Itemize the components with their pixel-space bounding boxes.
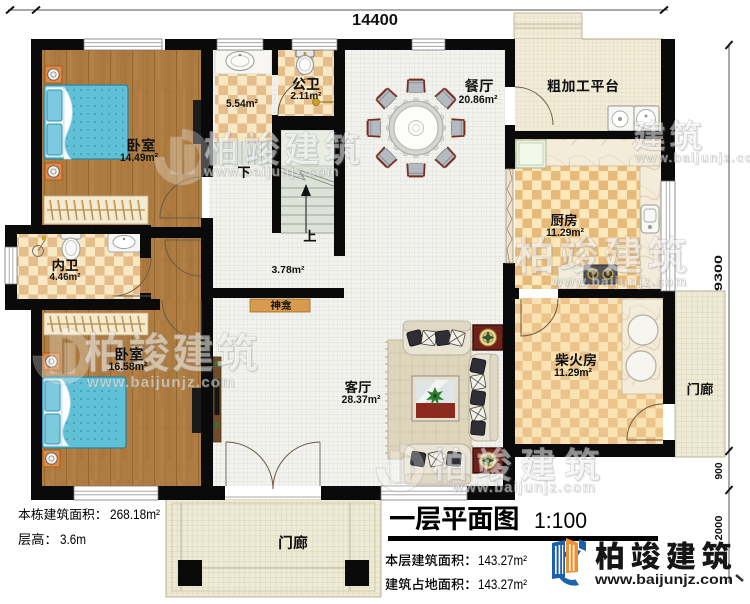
- svg-text:16.58m²: 16.58m²: [109, 361, 148, 373]
- svg-text:www.baijunjz.com: www.baijunjz.com: [203, 164, 340, 179]
- svg-text:3.6m: 3.6m: [60, 532, 86, 547]
- svg-text:11.29m²: 11.29m²: [554, 367, 592, 379]
- svg-text:143.27m²: 143.27m²: [478, 552, 527, 568]
- svg-text:28.37m²: 28.37m²: [342, 394, 381, 406]
- svg-text:900: 900: [714, 462, 725, 479]
- svg-text:1:100: 1:100: [534, 508, 587, 533]
- svg-text:14.49m²: 14.49m²: [120, 152, 158, 164]
- svg-text:www.baijunjz.com: www.baijunjz.com: [551, 274, 688, 289]
- svg-text:2000: 2000: [714, 515, 725, 540]
- svg-text:11.29m²: 11.29m²: [546, 227, 584, 239]
- svg-text:3.78m²: 3.78m²: [272, 265, 306, 276]
- svg-text:www.baijunjz.com: www.baijunjz.com: [634, 150, 750, 165]
- svg-text:14400: 14400: [352, 12, 398, 29]
- svg-text:4.46m²: 4.46m²: [50, 271, 81, 283]
- svg-text:www.baijunjz.com: www.baijunjz.com: [86, 374, 236, 391]
- svg-text:5.54m²: 5.54m²: [226, 98, 258, 110]
- svg-text:www.baijunjz.com: www.baijunjz.com: [451, 480, 596, 496]
- svg-text:143.27m²: 143.27m²: [478, 576, 527, 592]
- svg-text:2.11m²: 2.11m²: [291, 90, 322, 102]
- svg-text:www.baijunjz.com: www.baijunjz.com: [594, 571, 733, 587]
- svg-text:20.86m²: 20.86m²: [459, 94, 498, 106]
- svg-text:268.18m²: 268.18m²: [110, 507, 160, 522]
- svg-text:9300: 9300: [713, 255, 725, 291]
